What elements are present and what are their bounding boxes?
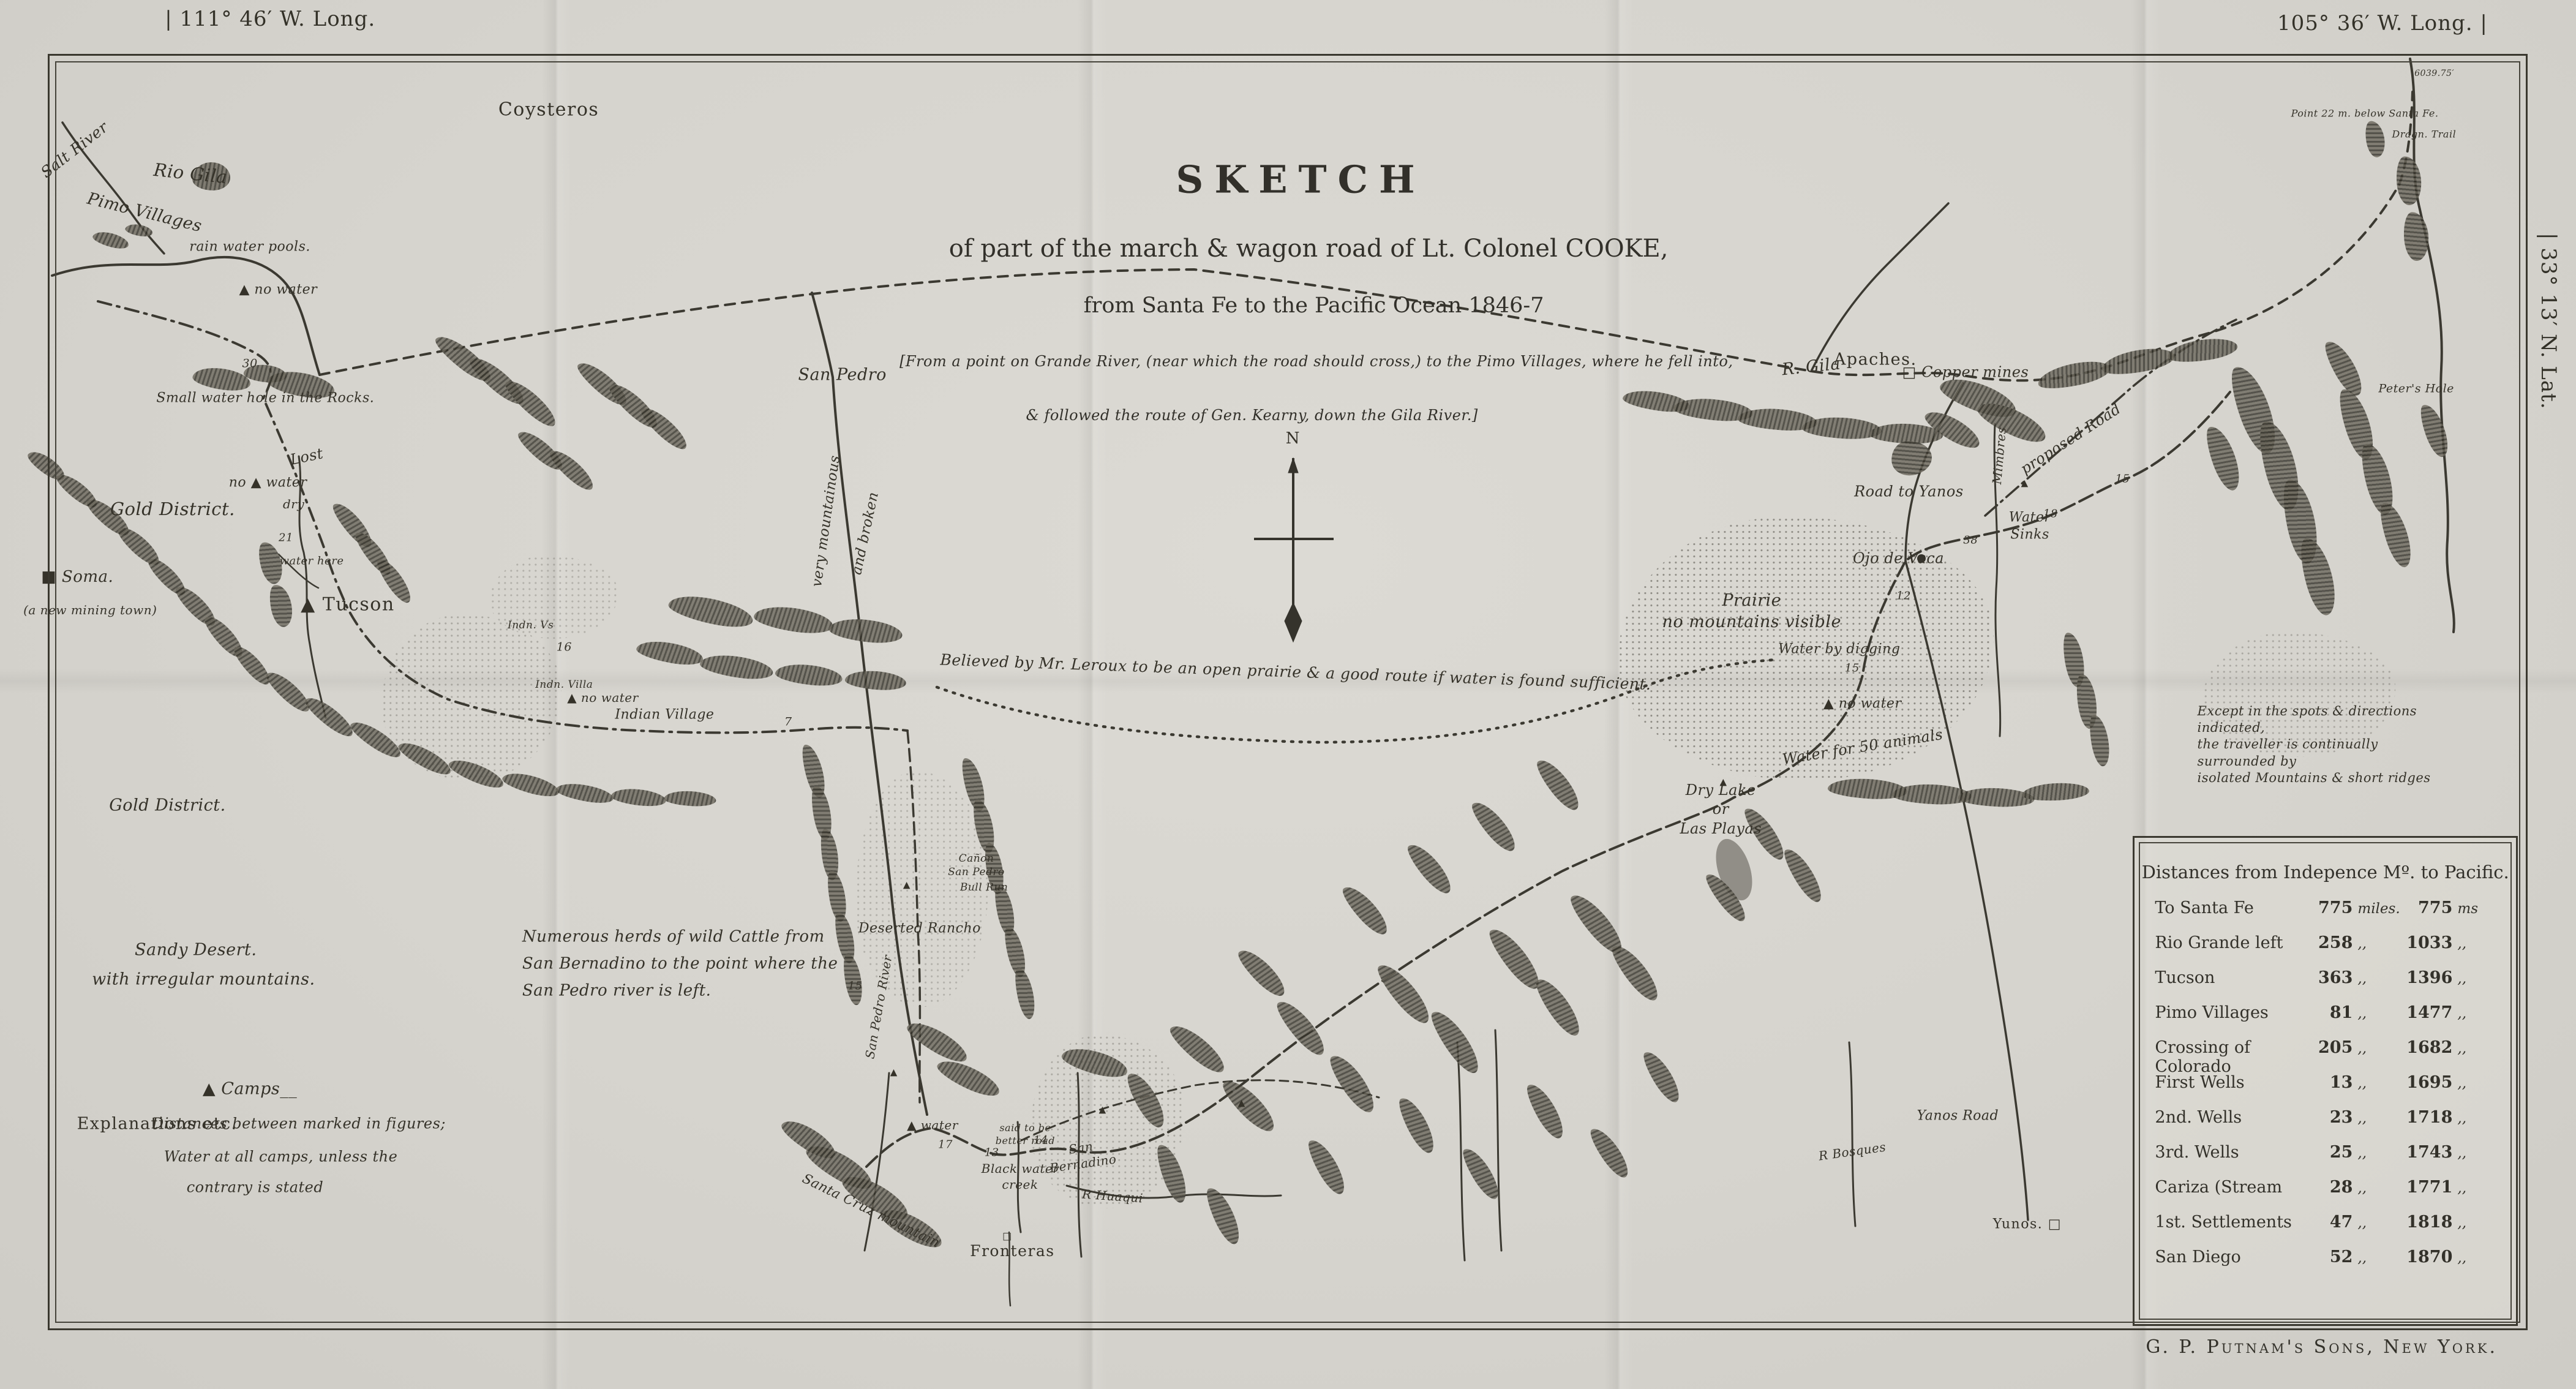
map-label: Peter's Hole — [2378, 382, 2454, 397]
distances-cell: ,, — [2452, 1006, 2482, 1022]
distances-cell: ,, — [2452, 1145, 2482, 1161]
map-label: Deserted Rancho — [858, 920, 981, 938]
map-label: Small water hole in the Rocks. — [156, 390, 374, 408]
map-label: Yunos. □ — [1993, 1216, 2062, 1234]
map-label: ▲ — [1719, 776, 1727, 788]
map-label: ▲ — [1238, 1097, 1245, 1109]
map-label: ▲ Tucson — [301, 592, 395, 616]
distances-cell: ,, — [2452, 1215, 2482, 1231]
map-label: Except in the spots & directions indicat… — [2198, 702, 2450, 786]
distances-cell: ,, — [2353, 1110, 2393, 1126]
distances-cell: Pimo Villages — [2155, 1003, 2310, 1022]
distances-cell: ,, — [2353, 1041, 2393, 1056]
map-sheet: CoysterosSalt RiverPimo VillagesRio Gila… — [0, 0, 2576, 1389]
map-label: ▲ — [890, 1066, 898, 1078]
distances-table-border: Distances from Indepence Mº. to Pacific.… — [2139, 842, 2512, 1320]
map-label: ■ Soma. — [41, 568, 113, 589]
map-label: 6039.75′ — [2414, 68, 2454, 79]
map-label: Distances between marked in figures; — [152, 1114, 446, 1133]
distances-cell: 25 — [2310, 1143, 2353, 1162]
distances-row: Crossing of Colorado205,,1682,, — [2140, 1038, 2510, 1073]
distances-cell: ,, — [2353, 1215, 2393, 1231]
map-label: rain water pools. — [189, 238, 310, 256]
map-label: Coysteros — [498, 98, 599, 122]
map-label: Santa Cruz mountain — [799, 1170, 942, 1252]
map-label: Yanos Road — [1917, 1108, 1999, 1126]
map-label: Gold District. — [110, 499, 235, 522]
map-label: Indian Village — [615, 707, 714, 725]
map-label: very mountainous — [809, 454, 846, 588]
distances-cell: ,, — [2353, 1145, 2393, 1161]
map-label: Dragn. Trail — [2392, 129, 2456, 141]
map-label: R Huaqui — [1082, 1186, 1144, 1206]
map-label: proposed Road — [2018, 399, 2125, 478]
map-label: water here — [280, 554, 344, 568]
map-label: San Bernadino — [1046, 1135, 1117, 1176]
distances-cell: Cariza (Stream — [2155, 1178, 2310, 1197]
map-label: ▲ — [2021, 478, 2029, 490]
map-label: Water by digging — [1778, 641, 1900, 659]
distances-cell: Tucson — [2155, 968, 2310, 987]
map-label: N — [1286, 429, 1301, 450]
map-label: ▲ no water — [567, 690, 639, 706]
map-label: Lost — [288, 444, 325, 470]
distances-cell: 2nd. Wells — [2155, 1108, 2310, 1127]
distances-cell: 1st. Settlements — [2155, 1213, 2310, 1232]
distances-row: 2nd. Wells23,,1718,, — [2140, 1108, 2510, 1143]
distances-cell: 1396 — [2393, 968, 2452, 987]
longitude-right-label: 105° 36′ W. Long. | — [2277, 11, 2488, 36]
map-label: ▲ no water — [239, 282, 318, 299]
map-label: dry — [283, 496, 304, 512]
map-label: Believed by Mr. Leroux to be an open pra… — [940, 650, 1651, 694]
distances-cell: ,, — [2452, 936, 2482, 952]
distances-cell: 13 — [2310, 1073, 2353, 1092]
map-label: San Pedro — [798, 364, 886, 386]
distances-row: To Santa Fe775miles.775ms — [2140, 898, 2510, 933]
map-label: with irregular mountains. — [92, 968, 315, 990]
distances-cell: 28 — [2310, 1178, 2353, 1197]
map-label: Water at all camps, unless the — [164, 1148, 398, 1167]
map-label: ▲ no water — [1823, 696, 1902, 713]
map-label: and broken — [848, 491, 884, 577]
distances-cell: 1818 — [2393, 1213, 2452, 1232]
map-label: Mimbres — [1989, 426, 2010, 485]
distances-cell: ,, — [2452, 1180, 2482, 1196]
map-label: Prairie no mountains visible — [1662, 590, 1841, 633]
map-label: ▲ — [1099, 1104, 1106, 1116]
distances-cell: 775 — [2393, 898, 2452, 917]
distances-row: First Wells13,,1695,, — [2140, 1073, 2510, 1108]
map-label: ▲ water — [907, 1117, 958, 1133]
map-label: Water for 50 animals — [1781, 725, 1944, 769]
distances-cell: miles. — [2353, 901, 2393, 917]
map-label: 15 — [2116, 472, 2130, 486]
distances-cell: Rio Grande left — [2155, 933, 2310, 952]
distances-cell: 775 — [2310, 898, 2353, 917]
map-label: 7 — [784, 715, 792, 730]
distances-row: Rio Grande left258,,1033,, — [2140, 933, 2510, 968]
distances-table: Distances from Indepence Mº. to Pacific.… — [2133, 836, 2518, 1326]
map-label: Rio Gila — [152, 158, 228, 189]
distances-cell: 1682 — [2393, 1038, 2452, 1057]
map-label: Salt River — [37, 118, 112, 183]
distances-cell: 258 — [2310, 933, 2353, 952]
map-label: 12 — [1896, 589, 1911, 603]
distances-cell: ,, — [2452, 1110, 2482, 1126]
map-label: 14 — [1034, 1133, 1048, 1147]
distances-cell: To Santa Fe — [2155, 898, 2310, 917]
map-label: □ — [1002, 1230, 1012, 1243]
map-label: 21 — [279, 530, 293, 544]
distances-cell: San Diego — [2155, 1248, 2310, 1267]
distances-cell: 1743 — [2393, 1143, 2452, 1162]
distances-cell: 1695 — [2393, 1073, 2452, 1092]
distances-cell: 205 — [2310, 1038, 2353, 1057]
map-label: Pimo Villages — [84, 188, 204, 237]
distances-cell: 1870 — [2393, 1248, 2452, 1267]
map-label: Gold District. — [109, 795, 225, 816]
map-label: (a new mining town) — [23, 602, 157, 618]
map-label: R Bosques — [1817, 1139, 1887, 1164]
map-label: no ▲ water — [229, 475, 307, 492]
map-label: Cañon San Pedro — [948, 852, 1005, 879]
distances-cell: ,, — [2353, 1180, 2393, 1196]
distances-cell: ,, — [2452, 1250, 2482, 1266]
map-label: Sandy Desert. — [135, 939, 257, 961]
distances-cell: 1771 — [2393, 1178, 2452, 1197]
distances-cell: ,, — [2353, 1006, 2393, 1022]
map-label: Numerous herds of wild Cattle from San B… — [522, 924, 838, 1005]
distances-cell: ,, — [2353, 936, 2393, 952]
map-label: ▲ Camps__ — [203, 1078, 297, 1100]
map-label: Black water creek — [982, 1161, 1059, 1192]
map-label: Point 22 m. below Santa Fe. — [2291, 108, 2439, 121]
distances-cell: ,, — [2452, 1075, 2482, 1091]
distances-row: 1st. Settlements47,,1818,, — [2140, 1213, 2510, 1248]
distances-cell: ,, — [2353, 1075, 2393, 1091]
map-label: Bull Run — [960, 881, 1008, 894]
distances-cell: 52 — [2310, 1248, 2353, 1267]
publisher-imprint: G. P. Putnam's Sons, New York. — [2146, 1336, 2498, 1358]
map-label: 17 — [938, 1137, 953, 1151]
map-label: 38 — [1963, 533, 1978, 548]
distances-row: Cariza (Stream28,,1771,, — [2140, 1178, 2510, 1213]
distances-cell: Crossing of Colorado — [2155, 1038, 2310, 1076]
map-label: 16 — [557, 640, 572, 655]
map-label: 15 — [848, 979, 863, 993]
distances-cell: ,, — [2353, 971, 2393, 987]
map-label: ▲ — [903, 879, 911, 891]
map-label: Road to Yanos — [1854, 482, 1964, 501]
distances-table-title: Distances from Indepence Mº. to Pacific. — [2140, 862, 2510, 883]
map-label: 13 — [985, 1146, 999, 1160]
distances-table-rows: To Santa Fe775miles.775msRio Grande left… — [2140, 898, 2510, 1282]
map-label: Indn. Vs — [508, 619, 554, 632]
distances-cell: 81 — [2310, 1003, 2353, 1022]
latitude-right-label: | 33° 13′ N. Lat. — [2536, 233, 2561, 410]
distances-cell: 1718 — [2393, 1108, 2452, 1127]
distances-cell: 23 — [2310, 1108, 2353, 1127]
map-label: contrary is stated — [187, 1178, 324, 1197]
map-label: 15 — [1845, 661, 1860, 675]
map-label: Ojo de Vaca — [1853, 549, 1944, 568]
longitude-left-label: | 111° 46′ W. Long. — [165, 7, 375, 31]
distances-cell: 1477 — [2393, 1003, 2452, 1022]
map-label: Water Sinks — [2009, 509, 2051, 544]
map-label: San Pedro River — [862, 954, 895, 1061]
map-label: 30 — [242, 356, 257, 372]
map-label: □ Copper mines — [1902, 363, 2029, 382]
distances-cell: ,, — [2452, 1041, 2482, 1056]
distances-row: San Diego52,,1870,, — [2140, 1248, 2510, 1282]
map-label: R. Gila — [1781, 353, 1841, 380]
distances-cell: ms — [2452, 901, 2482, 917]
distances-cell: 363 — [2310, 968, 2353, 987]
map-label: Dry Lake or Las Playas — [1680, 781, 1762, 838]
distances-row: Tucson363,,1396,, — [2140, 968, 2510, 1003]
distances-cell: 3rd. Wells — [2155, 1143, 2310, 1162]
distances-cell: ,, — [2452, 971, 2482, 987]
distances-row: 3rd. Wells25,,1743,, — [2140, 1143, 2510, 1178]
distances-cell: 47 — [2310, 1213, 2353, 1232]
distances-cell: 1033 — [2393, 933, 2452, 952]
distances-cell: First Wells — [2155, 1073, 2310, 1092]
map-label: Fronteras — [970, 1241, 1054, 1262]
distances-cell: ,, — [2353, 1250, 2393, 1266]
distances-row: Pimo Villages81,,1477,, — [2140, 1003, 2510, 1038]
